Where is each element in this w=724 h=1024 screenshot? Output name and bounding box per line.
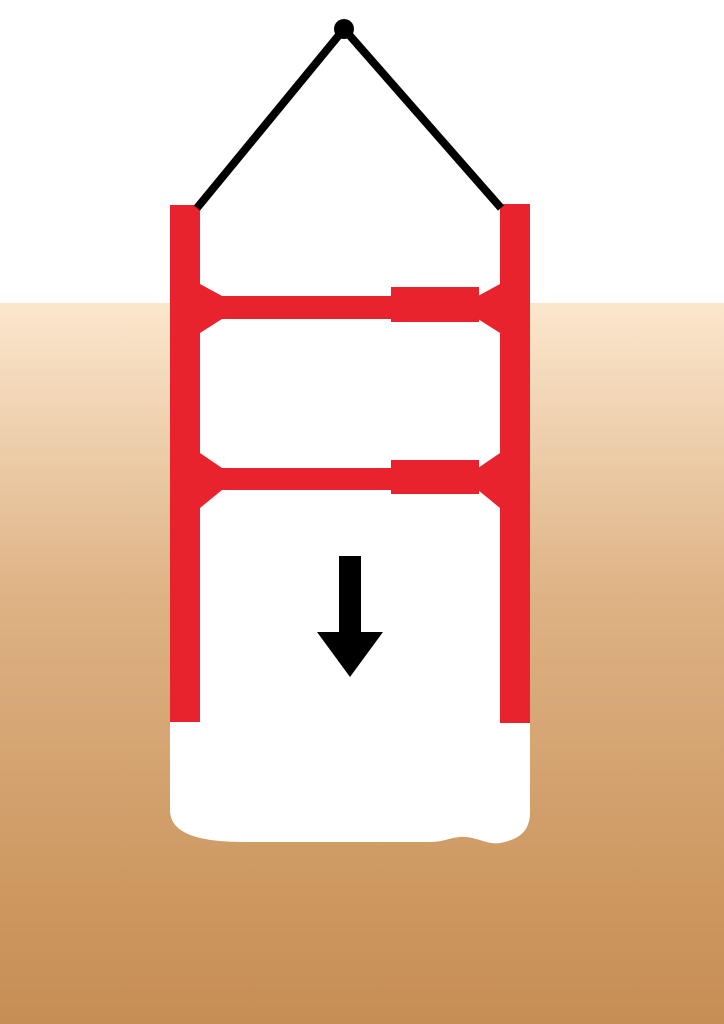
sling-apex-dot bbox=[334, 19, 354, 39]
diagram-canvas bbox=[0, 0, 724, 1024]
shoring-left-rail bbox=[170, 205, 200, 722]
lower-brace-collar bbox=[391, 460, 479, 494]
trench-shoring-diagram bbox=[0, 0, 724, 1024]
upper-brace-collar bbox=[391, 287, 479, 322]
shoring-right-rail bbox=[500, 204, 530, 723]
